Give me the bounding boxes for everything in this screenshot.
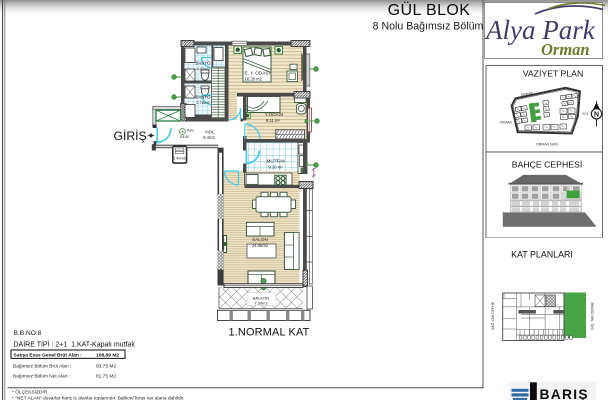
svg-text:93,75 M2: 93,75 M2 [96, 363, 116, 369]
svg-text:* ÖLÇEKSİZDİR.: * ÖLÇEKSİZDİR. [12, 389, 49, 396]
svg-text:BAHÇE CEPHESİ: BAHÇE CEPHESİ [512, 160, 582, 170]
svg-text:SALON: SALON [252, 237, 268, 242]
svg-text:Satışa Esas Genel Brüt Alan :: Satışa Esas Genel Brüt Alan : [14, 352, 83, 358]
svg-text:SAĞ YAN CEPHE: SAĞ YAN CEPHE [490, 301, 495, 330]
svg-text:GÜL BLOK: GÜL BLOK [388, 1, 471, 19]
svg-text:MUTFAK: MUTFAK [266, 159, 286, 164]
svg-text:GİRİŞ: GİRİŞ [114, 129, 147, 143]
svg-text:* "NET ALAN" duvarlar hariç iç: * "NET ALAN" duvarlar hariç iç alanlar t… [12, 396, 184, 400]
svg-text:81,75 M2: 81,75 M2 [96, 374, 116, 380]
svg-text:ORMAN VADİ: ORMAN VADİ [536, 142, 558, 147]
svg-text:Bağımsız Bölüm Brüt Alan :: Bağımsız Bölüm Brüt Alan : [13, 363, 71, 369]
svg-text:7.30m2: 7.30m2 [254, 300, 268, 305]
svg-text:Bağımsız Bölüm Net Alan :: Bağımsız Bölüm Net Alan : [13, 374, 70, 380]
svg-text:SOL YAN CEPHE: SOL YAN CEPHE [591, 301, 595, 329]
svg-text:9.11 m²: 9.11 m² [266, 118, 280, 123]
svg-text:9.4m2: 9.4m2 [203, 135, 215, 140]
svg-text:VAZİYET PLAN: VAZİYET PLAN [523, 69, 584, 79]
svg-text:8 Nolu Bağımsız Bölüm: 8 Nolu Bağımsız Bölüm [373, 21, 484, 33]
svg-text:Nolu: Nolu [187, 129, 194, 133]
svg-text:Orman: Orman [541, 40, 590, 59]
svg-text:DAİRE TİPİ : 2+1 1.KAT-Kapalı: DAİRE TİPİ : 2+1 1.KAT-Kapalı mutfak [14, 340, 136, 349]
svg-text:24.85m2: 24.85m2 [252, 243, 269, 248]
svg-text:4.47m2: 4.47m2 [196, 66, 210, 71]
svg-text:N: N [594, 111, 599, 118]
svg-text:9.16 m²: 9.16 m² [268, 165, 283, 170]
svg-text:HOL: HOL [205, 130, 215, 135]
svg-text:BANYO: BANYO [195, 95, 211, 100]
svg-text:YOL: YOL [582, 112, 589, 116]
svg-text:B.B.NO:8: B.B.NO:8 [14, 330, 42, 337]
svg-text:BARIŞ: BARIŞ [540, 387, 589, 400]
svg-text:KAT PLANLARI: KAT PLANLARI [511, 250, 573, 260]
svg-text:16.28 m2: 16.28 m2 [245, 77, 263, 82]
svg-text:Y.ODASI: Y.ODASI [265, 112, 283, 117]
svg-text:E. Y. ODASI: E. Y. ODASI [245, 71, 270, 76]
svg-text:1.NORMAL KAT: 1.NORMAL KAT [228, 327, 309, 339]
svg-text:0.49m2: 0.49m2 [173, 156, 186, 161]
svg-text:ORMAN: ORMAN [500, 121, 513, 125]
svg-text:YOL: YOL [563, 87, 570, 92]
svg-text:8.8 Ail: 8.8 Ail [180, 135, 189, 139]
svg-text:108,89 M2: 108,89 M2 [96, 352, 119, 358]
svg-text:8: 8 [182, 130, 184, 134]
svg-text:2.78m2: 2.78m2 [196, 100, 210, 105]
svg-text:BANYO: BANYO [195, 61, 211, 66]
